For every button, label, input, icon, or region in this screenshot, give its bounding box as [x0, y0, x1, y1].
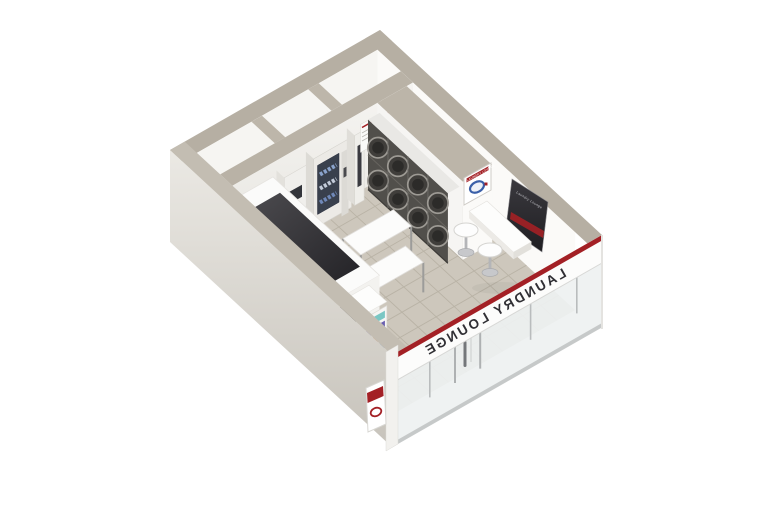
blade-sign — [366, 380, 386, 432]
stool-base — [458, 249, 474, 257]
door-handle — [464, 341, 467, 367]
logo-red-dot — [485, 183, 488, 186]
stool-seat — [454, 223, 478, 237]
washer-door-glass — [372, 142, 384, 154]
south-corner-pillar — [386, 345, 398, 451]
vending-keypad — [344, 167, 347, 178]
washer-door-glass — [392, 193, 404, 205]
kiosk-side — [347, 128, 355, 205]
washer-door-glass — [392, 160, 404, 172]
washer-door-glass — [432, 230, 444, 242]
stool-seat — [478, 243, 502, 257]
isometric-scene: Laundry Lounge LAUNDRY LOUNGE — [0, 0, 768, 518]
stool-base — [482, 269, 498, 277]
washer-door-glass — [412, 179, 424, 191]
laundry-floorplan-render: Laundry Lounge LAUNDRY LOUNGE — [0, 0, 768, 518]
washer-door-glass — [412, 212, 424, 224]
washer-door-glass — [372, 175, 384, 187]
washer-door-glass — [432, 197, 444, 209]
